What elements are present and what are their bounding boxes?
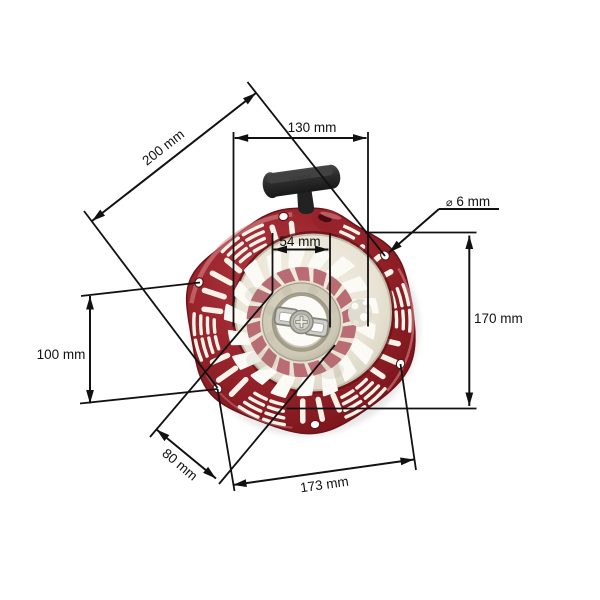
svg-text:54 mm: 54 mm [279, 234, 320, 249]
svg-text:170 mm: 170 mm [474, 311, 523, 326]
svg-text:130 mm: 130 mm [288, 120, 337, 135]
svg-text:100 mm: 100 mm [37, 347, 86, 362]
svg-text:⌀ 6 mm: ⌀ 6 mm [446, 194, 490, 209]
